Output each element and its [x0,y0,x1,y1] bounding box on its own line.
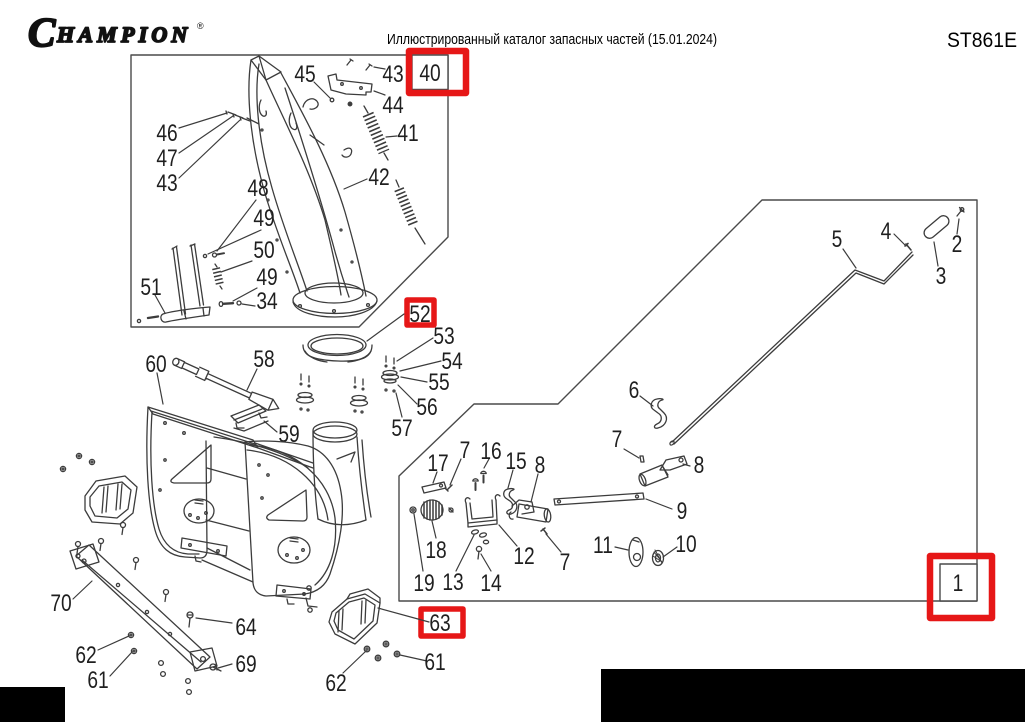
svg-text:61: 61 [424,648,445,676]
svg-text:50: 50 [253,236,274,264]
svg-text:8: 8 [535,451,546,479]
svg-text:62: 62 [75,641,96,669]
svg-text:19: 19 [413,569,434,597]
svg-text:49: 49 [253,204,274,232]
svg-text:46: 46 [156,119,177,147]
svg-text:7: 7 [612,425,623,453]
svg-text:9: 9 [677,497,688,525]
svg-text:13: 13 [442,568,463,596]
svg-text:62: 62 [325,669,346,697]
svg-text:15: 15 [505,447,526,475]
svg-text:14: 14 [480,569,501,597]
svg-text:45: 45 [294,60,315,88]
svg-text:52: 52 [409,300,430,328]
svg-text:2: 2 [952,230,963,258]
svg-text:69: 69 [235,650,256,678]
svg-text:70: 70 [50,589,71,617]
svg-text:7: 7 [560,548,571,576]
svg-text:1: 1 [953,569,964,597]
svg-text:57: 57 [391,414,412,442]
svg-text:8: 8 [694,451,705,479]
svg-text:18: 18 [425,536,446,564]
svg-text:HAMPION: HAMPION [56,22,192,47]
svg-text:17: 17 [427,449,448,477]
svg-text:3: 3 [936,262,947,290]
svg-text:C: C [28,9,56,55]
svg-text:51: 51 [140,273,161,301]
svg-text:64: 64 [235,613,256,641]
svg-text:63: 63 [429,609,450,637]
svg-text:44: 44 [382,91,403,119]
svg-text:12: 12 [513,542,534,570]
svg-text:16: 16 [480,437,501,465]
svg-text:7: 7 [460,436,471,464]
svg-text:11: 11 [593,531,613,559]
svg-text:34: 34 [256,287,277,315]
svg-text:10: 10 [675,530,696,558]
svg-text:6: 6 [629,376,640,404]
svg-text:60: 60 [145,350,166,378]
svg-text:56: 56 [416,393,437,421]
svg-text:40: 40 [419,59,440,87]
svg-text:41: 41 [397,119,418,147]
svg-text:4: 4 [881,217,892,245]
svg-text:61: 61 [87,666,108,694]
svg-text:55: 55 [428,368,449,396]
svg-text:43: 43 [156,169,177,197]
svg-text:42: 42 [368,163,389,191]
svg-text:48: 48 [247,174,268,202]
svg-text:47: 47 [156,144,177,172]
svg-text:58: 58 [253,345,274,373]
svg-text:53: 53 [433,322,454,350]
svg-text:43: 43 [382,60,403,88]
svg-text:ST861E: ST861E [947,28,1017,52]
svg-text:Иллюстрированный каталог запас: Иллюстрированный каталог запасных частей… [387,31,717,48]
svg-text:5: 5 [832,225,843,253]
svg-text:®: ® [197,21,204,31]
